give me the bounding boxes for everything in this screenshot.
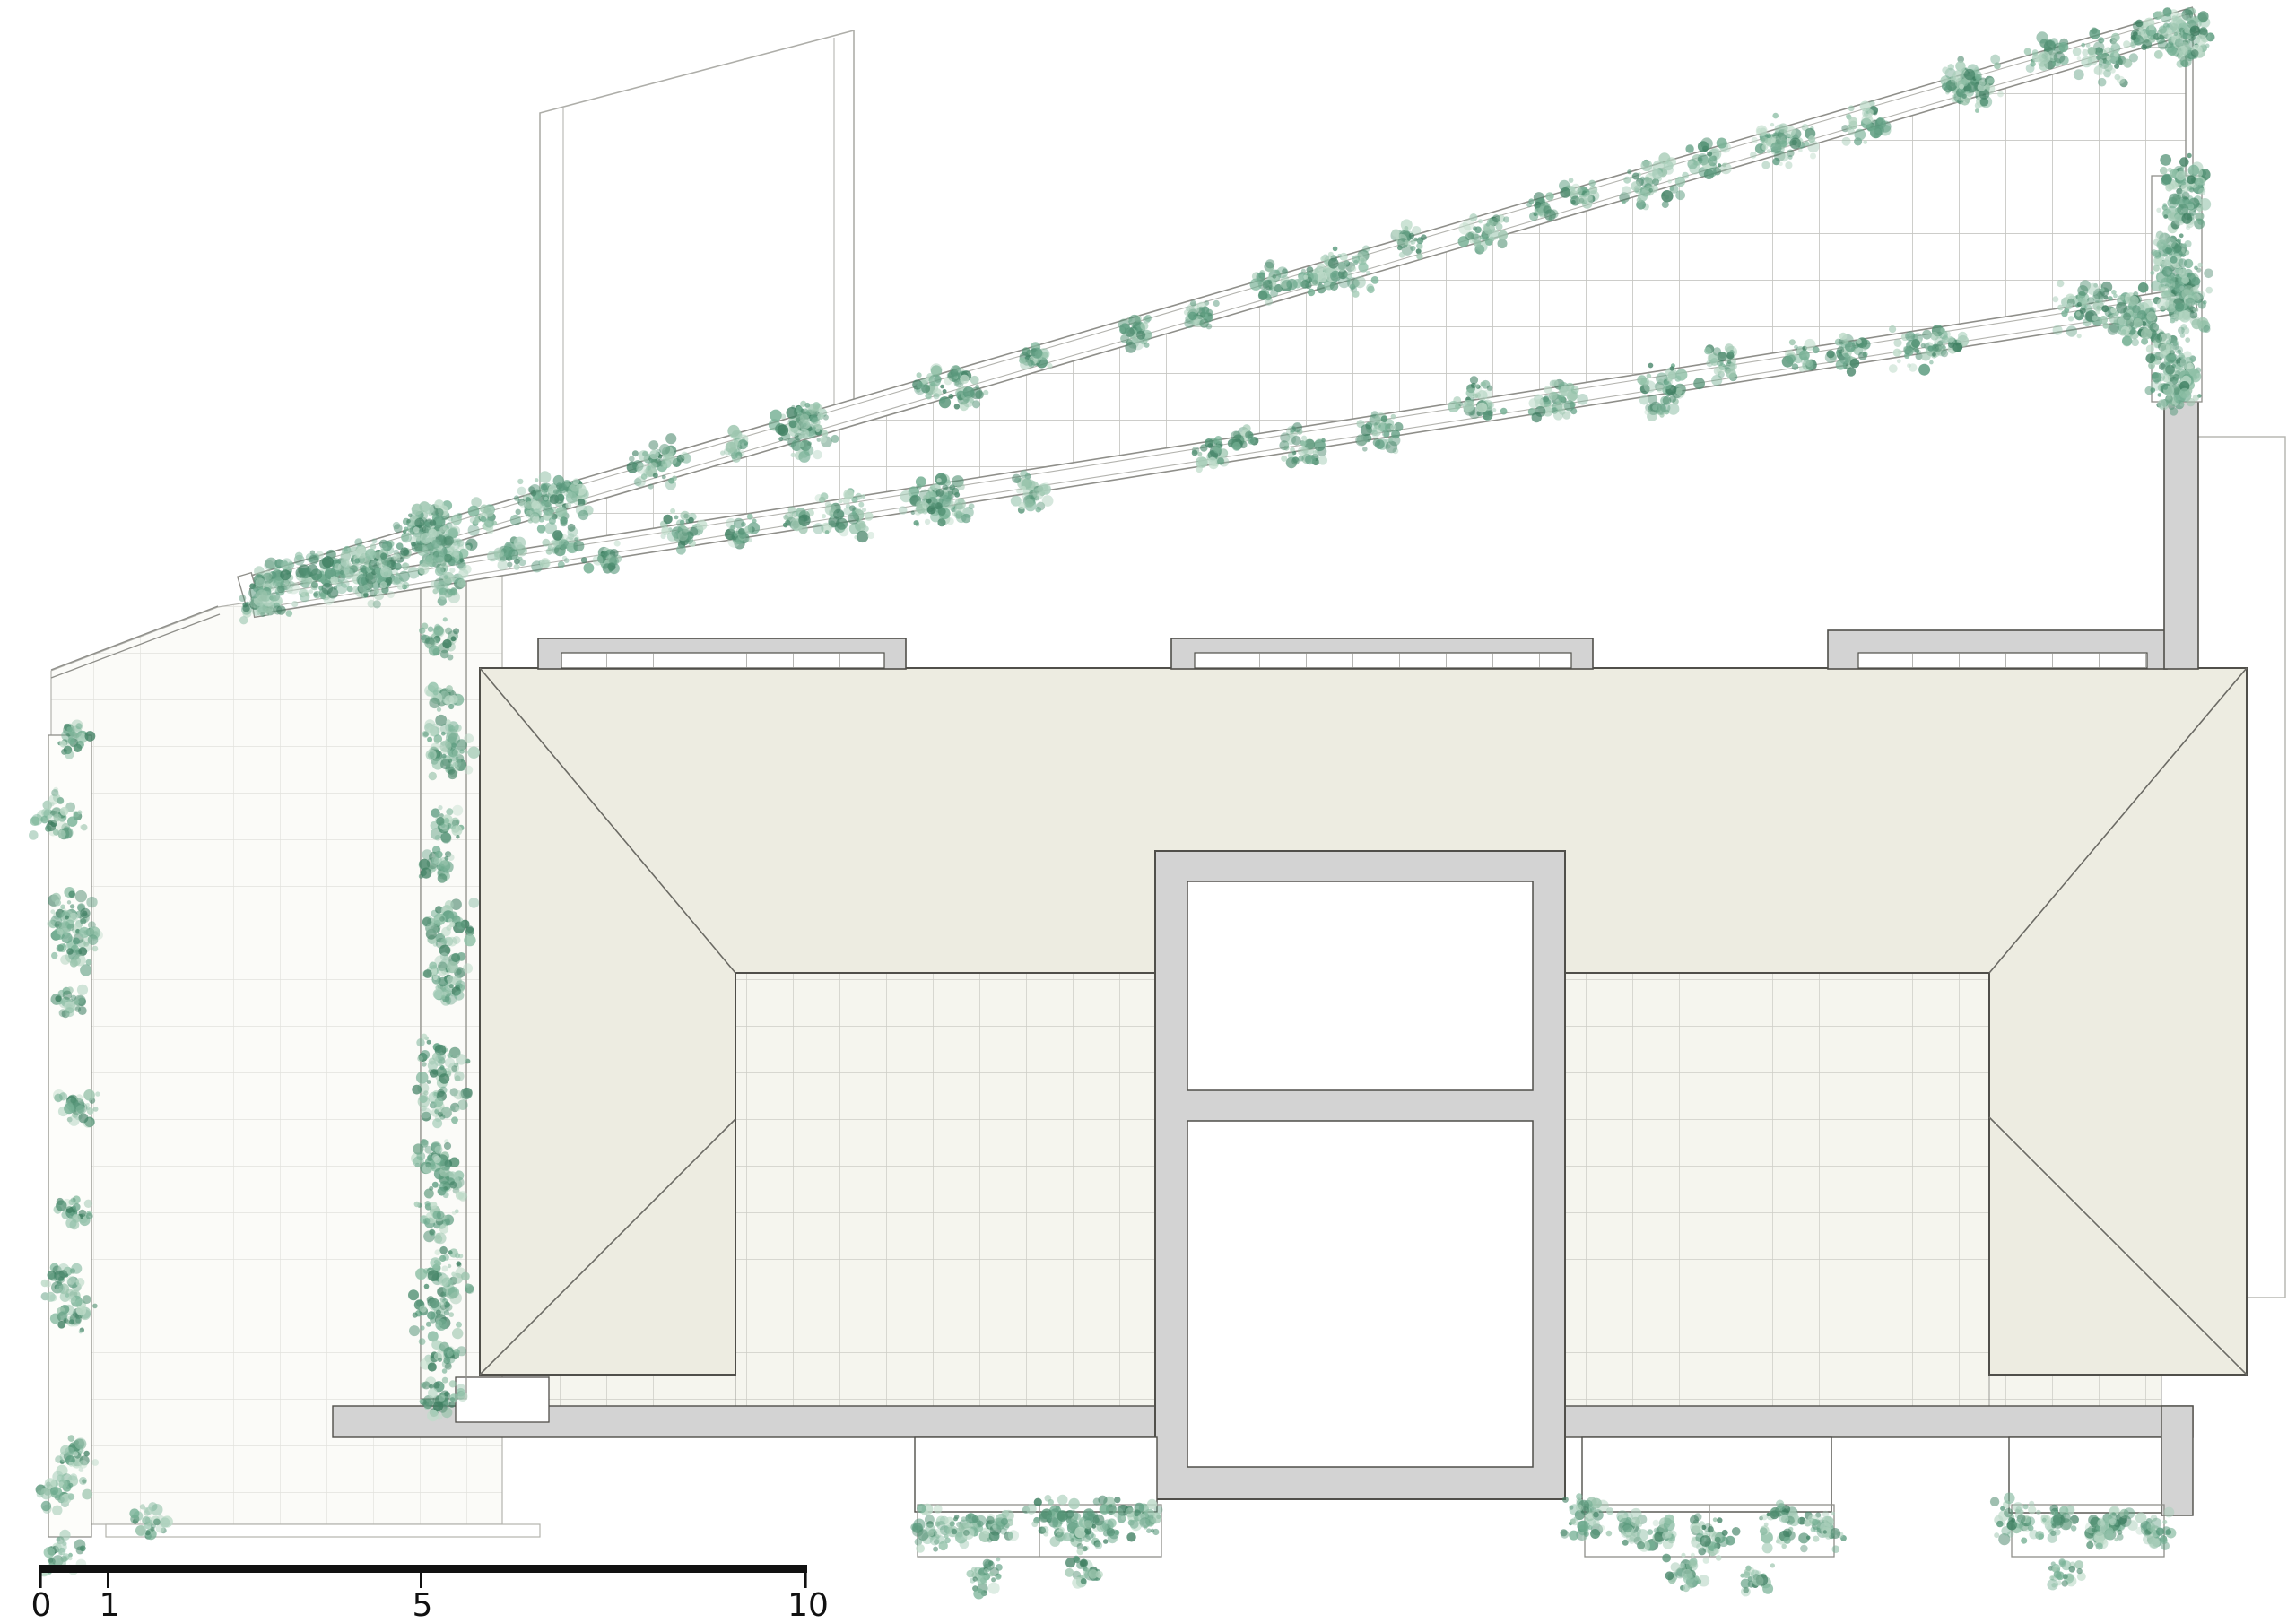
foliage-cluster <box>813 488 874 542</box>
foliage-cluster <box>1740 1563 1775 1596</box>
foliage-cluster <box>986 1510 1020 1543</box>
scale-label-0: 0 <box>31 1587 52 1623</box>
parapet-2-inset-ticks <box>1195 653 1571 668</box>
scale-tick-1 <box>107 1565 109 1588</box>
parapet-1-inset-ticks <box>561 653 884 668</box>
bottom-left-step <box>456 1377 549 1422</box>
central-core <box>1155 851 1565 1499</box>
parapet-3-inset-ticks <box>1858 653 2147 668</box>
core-void-lower <box>1187 1121 1533 1467</box>
top-parapet-1 <box>538 638 906 669</box>
scale-label-5: 5 <box>413 1587 433 1623</box>
foliage-cluster <box>2047 1558 2085 1590</box>
scale-bar-labels: 0 1 5 10 <box>31 1587 829 1623</box>
courtyard-left-walkway-grid <box>549 1375 735 1406</box>
scale-tick-0 <box>39 1565 42 1588</box>
parapet-3-vertical-wall <box>2164 386 2198 669</box>
terrace-edge-step <box>106 1524 540 1537</box>
porch-right-wall <box>2161 1406 2193 1515</box>
core-void-upper <box>1187 881 1533 1090</box>
courtyard-right-walkway-grid <box>1989 1375 2161 1406</box>
foliage-cluster <box>967 1558 1003 1600</box>
scale-tick-10 <box>804 1565 807 1588</box>
foliage-cluster <box>1662 1553 1709 1593</box>
scale-label-1: 1 <box>100 1587 120 1623</box>
scale-bar: 0 1 5 10 <box>31 1565 829 1623</box>
top-parapet-3 <box>1828 386 2198 669</box>
foliage-cluster <box>430 805 465 844</box>
scale-bar-bar <box>40 1565 807 1573</box>
foliage-cluster <box>1065 1556 1103 1589</box>
top-parapet-2 <box>1171 638 1593 669</box>
foliage-cluster <box>2135 1507 2177 1550</box>
hedge-planter-left <box>48 735 91 1537</box>
porch-2 <box>1582 1437 1831 1512</box>
foliage-cluster <box>1690 1513 1740 1561</box>
foliage-cluster <box>950 1513 991 1549</box>
scale-label-10: 10 <box>787 1587 829 1623</box>
scale-tick-5 <box>420 1565 422 1588</box>
architectural-roof-plan: 0 1 5 10 <box>0 0 2296 1623</box>
